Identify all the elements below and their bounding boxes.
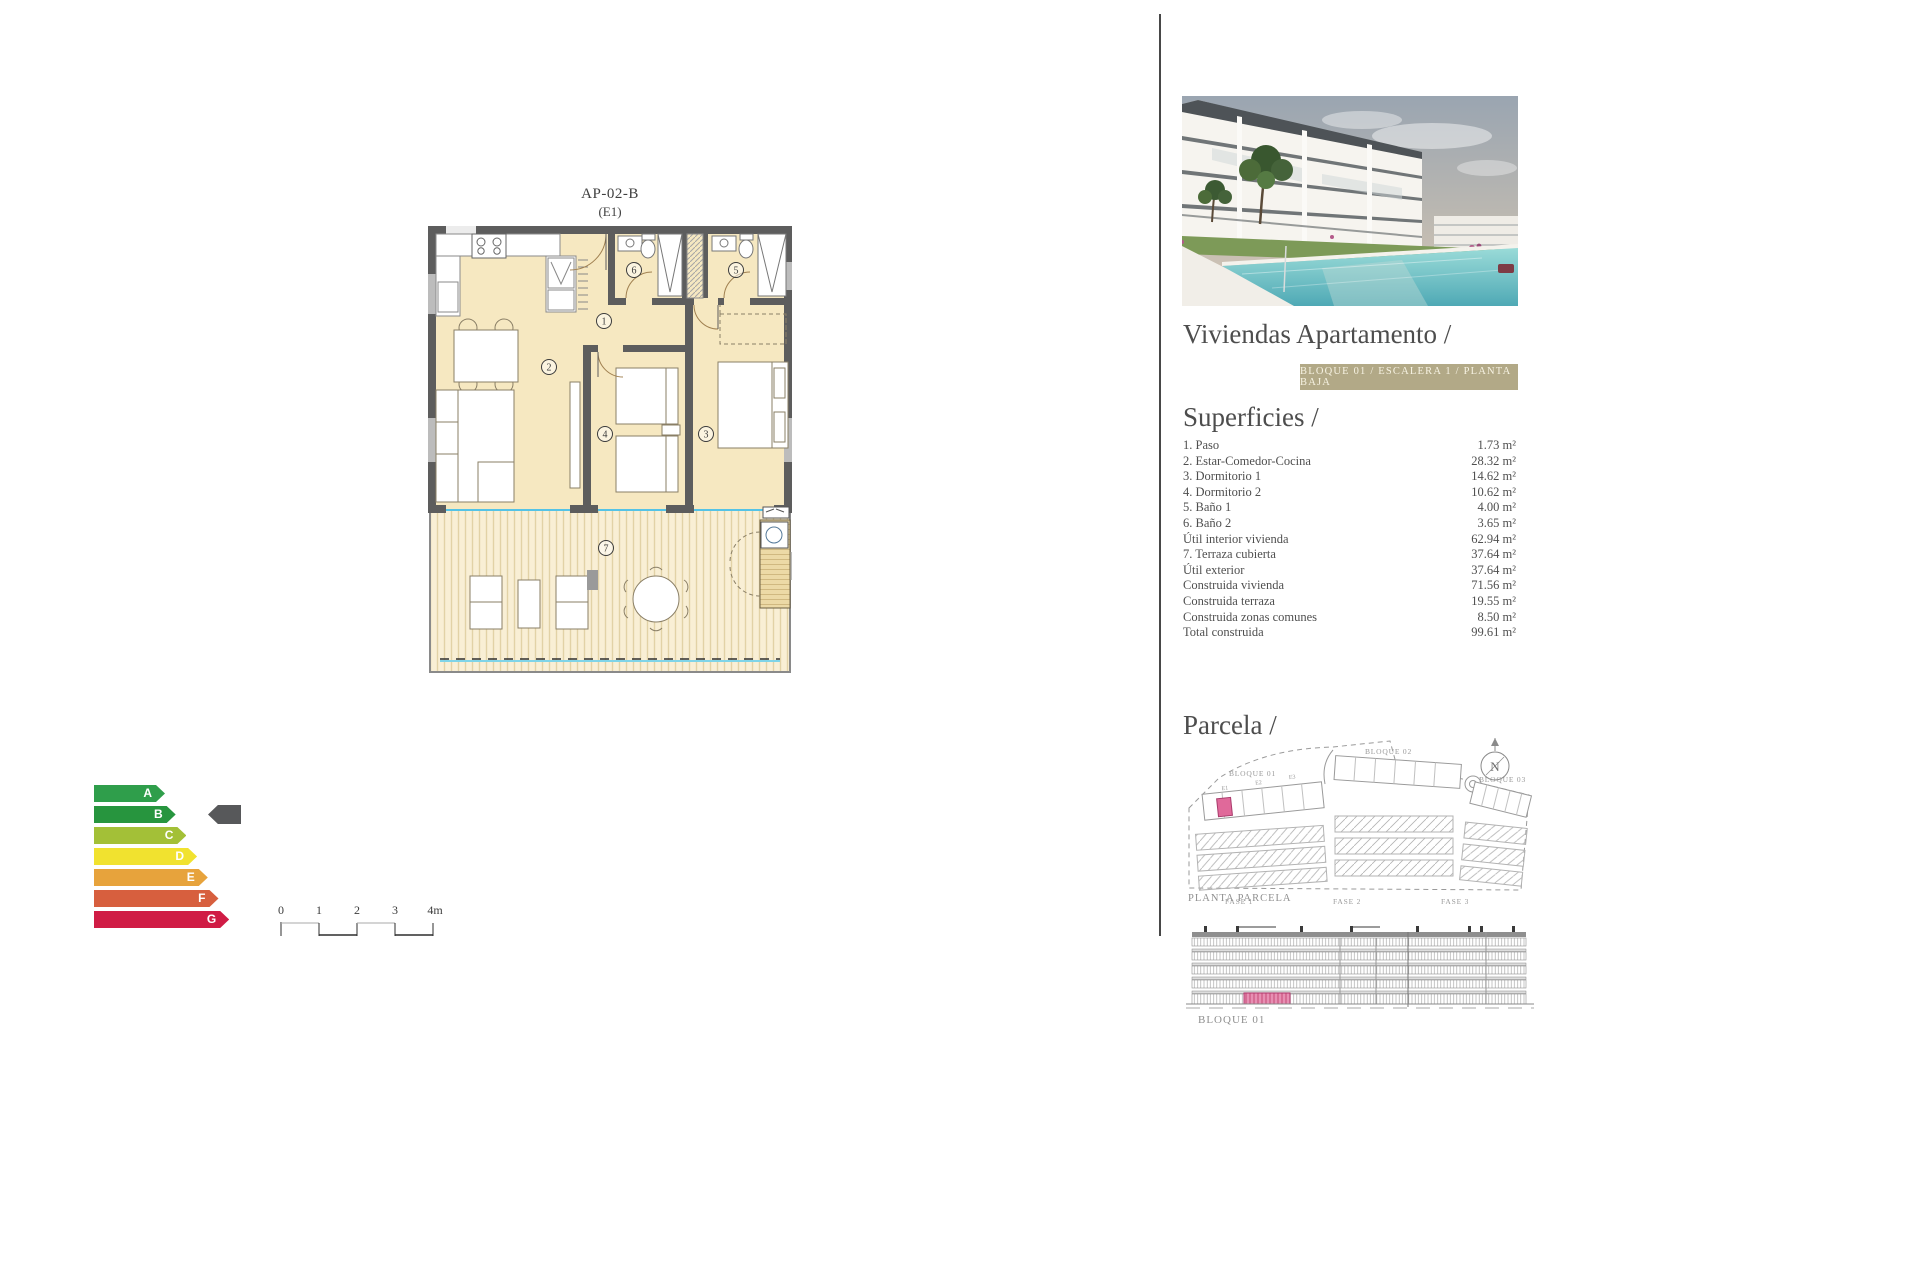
terrace-pillar — [587, 570, 598, 590]
svg-text:E3: E3 — [1289, 774, 1296, 781]
svg-text:2: 2 — [547, 363, 552, 374]
scale-bar: 0 1 2 3 4m — [276, 900, 446, 942]
svg-text:4: 4 — [603, 430, 608, 441]
fase-3-label: FASE 3 — [1441, 897, 1469, 906]
energy-row-D: D — [94, 848, 254, 865]
energy-row-G: G — [94, 911, 254, 928]
svg-text:4m: 4m — [427, 903, 443, 917]
energy-level-bar: G — [94, 911, 229, 928]
building-render-photo — [1182, 96, 1518, 306]
svg-text:1: 1 — [316, 903, 322, 917]
energy-level-bar: E — [94, 869, 208, 886]
svg-text:1: 1 — [602, 317, 607, 328]
floor-bands — [1192, 938, 1526, 1004]
bloque-02-label: BLOQUE 02 — [1365, 747, 1412, 756]
svg-text:0: 0 — [278, 903, 284, 917]
superficie-row: 7. Terraza cubierta37.64 m² — [1183, 547, 1516, 563]
tv-unit — [570, 382, 580, 488]
superficie-row: Útil interior vivienda62.94 m² — [1183, 532, 1516, 548]
sofa — [436, 390, 514, 502]
superficie-row: Útil exterior37.64 m² — [1183, 563, 1516, 579]
elevation-highlighted-unit — [1244, 993, 1290, 1004]
energy-level-bar: D — [94, 848, 197, 865]
floorplan-title-block: AP-02-B (E1) — [420, 186, 800, 220]
dining-table — [454, 319, 518, 393]
superficies-heading: Superficies / — [1183, 402, 1319, 433]
energy-row-C: C — [94, 827, 254, 844]
apartment-code: AP-02-B — [420, 186, 800, 203]
energy-level-bar: B — [94, 806, 176, 823]
superficies-list: 1. Paso1.73 m²2. Estar-Comedor-Cocina28.… — [1183, 438, 1516, 641]
svg-text:3: 3 — [392, 903, 398, 917]
energy-row-A: A — [94, 785, 254, 802]
superficie-row: 3. Dormitorio 114.62 m² — [1183, 469, 1516, 485]
svg-text:N: N — [1490, 759, 1500, 774]
site-plan: E1 E2 E3 BLOQUE 01 BLOQUE 02 BLOQUE 03 N… — [1183, 738, 1533, 910]
elevation-caption: BLOQUE 01 — [1198, 1014, 1265, 1026]
site-plan-caption: PLANTA PARCELA — [1188, 893, 1292, 904]
apartment-variant: (E1) — [420, 203, 800, 220]
page-title: Viviendas Apartamento / — [1183, 319, 1451, 350]
current-rating-pointer — [208, 805, 241, 824]
svg-text:3: 3 — [704, 430, 709, 441]
energy-level-bar: C — [94, 827, 186, 844]
parking-rows — [1196, 816, 1528, 890]
svg-text:5: 5 — [734, 266, 739, 277]
superficie-row: Construida vivienda71.56 m² — [1183, 578, 1516, 594]
bloque-01-building: E1 E2 E3 — [1201, 772, 1324, 820]
superficie-row: Construida zonas comunes8.50 m² — [1183, 610, 1516, 626]
building-elevation — [1180, 925, 1540, 1011]
north-compass: N — [1481, 738, 1509, 780]
energy-rating-chart: ABCDEFG — [94, 785, 254, 932]
svg-text:7: 7 — [604, 544, 609, 555]
svg-text:E1: E1 — [1221, 786, 1228, 793]
superficie-row: 4. Dormitorio 210.62 m² — [1183, 485, 1516, 501]
svg-text:E2: E2 — [1255, 780, 1262, 787]
energy-row-E: E — [94, 869, 254, 886]
parcela-heading: Parcela / — [1183, 710, 1277, 741]
fase-2-label: FASE 2 — [1333, 897, 1361, 906]
energy-row-B: B — [94, 806, 254, 823]
location-badge: BLOQUE 01 / ESCALERA 1 / PLANTA BAJA — [1300, 364, 1518, 390]
stove-icon — [472, 234, 506, 258]
superficie-row: 2. Estar-Comedor-Cocina28.32 m² — [1183, 454, 1516, 470]
top-window — [446, 226, 476, 234]
svg-text:2: 2 — [354, 903, 360, 917]
energy-row-F: F — [94, 890, 254, 907]
highlighted-unit — [1217, 797, 1233, 816]
bloque-02-building — [1334, 756, 1461, 789]
superficie-row: 6. Baño 23.65 m² — [1183, 516, 1516, 532]
bloque-03-building — [1470, 782, 1532, 817]
roof-details — [1204, 926, 1515, 932]
superficie-row: Total construida99.61 m² — [1183, 625, 1516, 641]
superficie-row: Construida terraza19.55 m² — [1183, 594, 1516, 610]
superficie-row: 5. Baño 14.00 m² — [1183, 500, 1516, 516]
duct-shaft — [687, 234, 703, 298]
svg-text:6: 6 — [632, 266, 637, 277]
floorplan-drawing: 1 2 3 4 5 6 7 — [420, 222, 800, 687]
terrace-loungers — [470, 576, 588, 629]
energy-level-bar: A — [94, 785, 165, 802]
bloque-01-label: BLOQUE 01 — [1229, 769, 1276, 778]
superficie-row: 1. Paso1.73 m² — [1183, 438, 1516, 454]
panel-divider — [1159, 14, 1161, 936]
energy-level-bar: F — [94, 890, 219, 907]
